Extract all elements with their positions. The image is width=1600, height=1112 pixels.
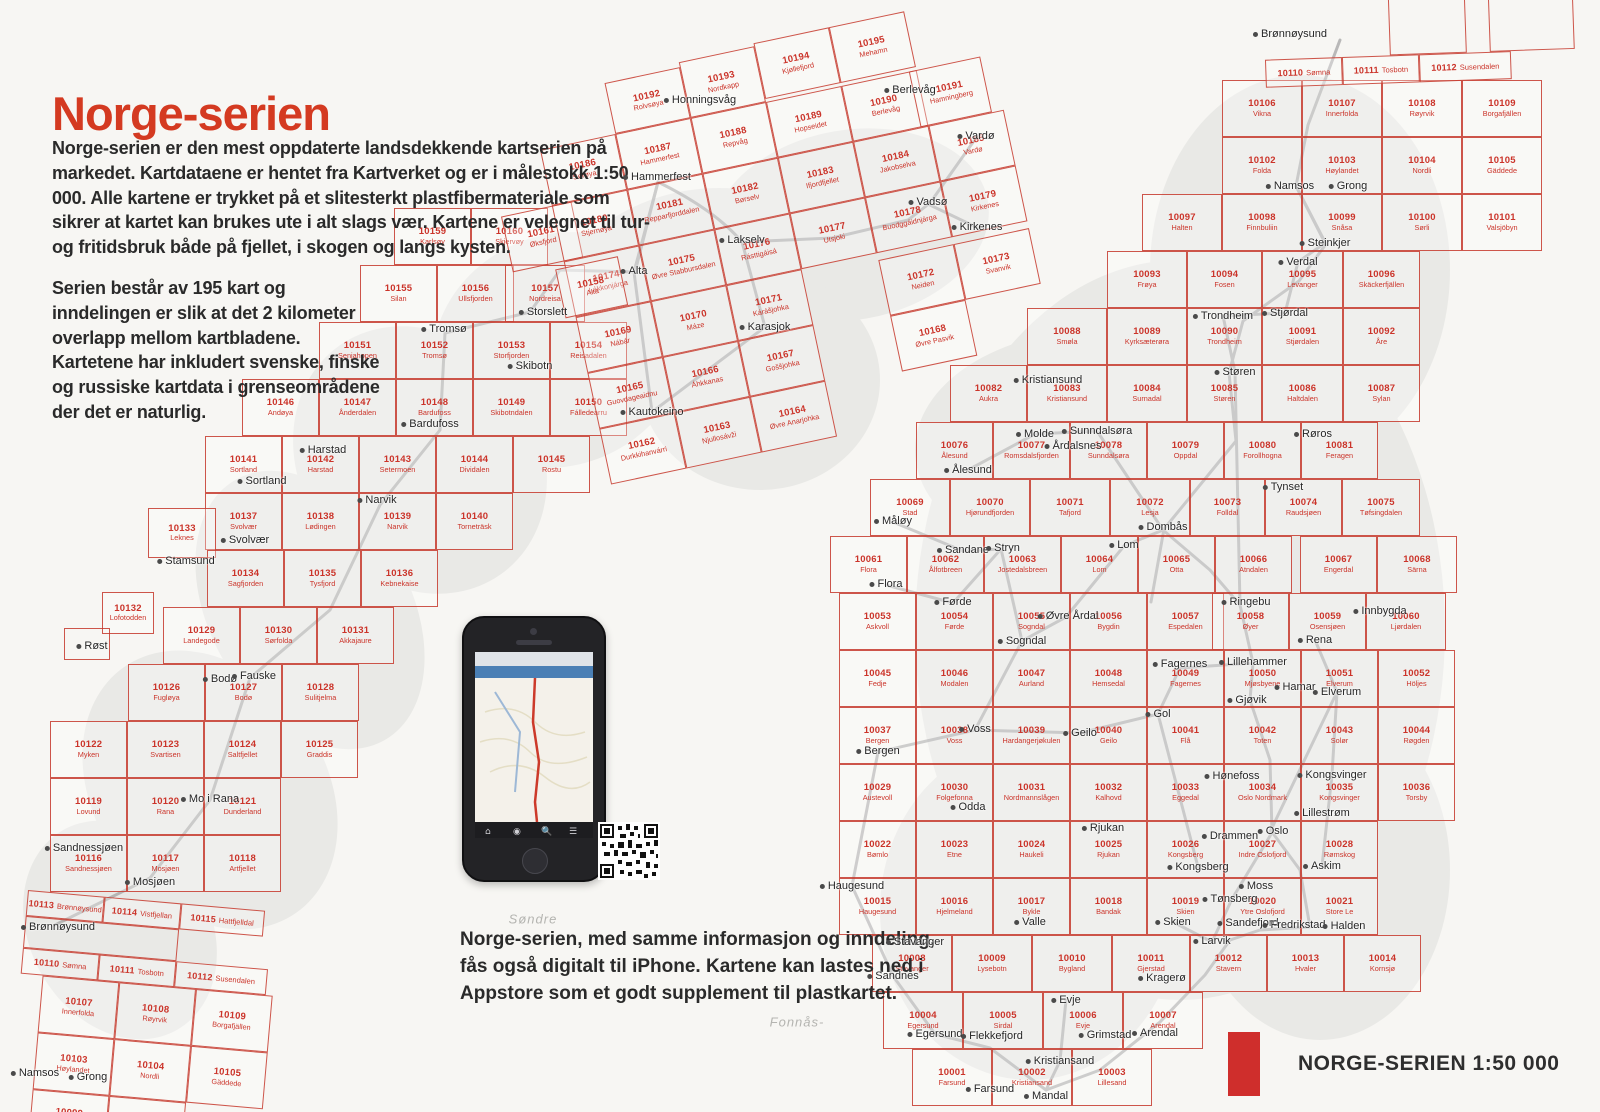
sheet-name: Aukra [979, 395, 998, 404]
sheet-name: Flora [860, 566, 877, 575]
map-cell-10134: 10134Sagfjorden [207, 550, 284, 607]
sheet-number: 10099 [55, 1106, 83, 1112]
town-label: Verdal [1278, 256, 1317, 268]
town-label: Kongsberg [1167, 861, 1228, 873]
series-footer: NORGE-SERIEN 1:50 000 [1228, 1032, 1559, 1096]
town-label: Gol [1145, 708, 1170, 720]
sheet-name: Tafjord [1059, 509, 1081, 518]
sheet-name: Borgafjällen [212, 1020, 251, 1032]
town-label: Honningsvåg [664, 94, 736, 106]
sheet-name: Setermoen [380, 466, 416, 475]
sheet-name: Fagernes [1170, 680, 1201, 689]
town-label: Alta [621, 265, 648, 277]
sheet-name: Utsjoki [823, 232, 846, 245]
sheet-name: Särna [1407, 566, 1426, 575]
map-cell-10065: 10065Otta [1138, 536, 1215, 593]
town-label: Ålesund [944, 464, 992, 476]
town-label: Kirkenes [952, 221, 1003, 233]
town-dot-icon [45, 846, 50, 851]
sheet-name: Sulitjelma [305, 694, 337, 703]
town-dot-icon [1323, 924, 1328, 929]
town-label: Svolvær [221, 534, 269, 546]
town-label: Mo i Rana [181, 793, 239, 805]
sheet-number: 10111 [1354, 64, 1379, 76]
sheet-name: Voss [947, 737, 963, 746]
town-dot-icon [1145, 712, 1150, 717]
town-dot-icon [1253, 32, 1258, 37]
sheet-name: Tøfsingdalen [1360, 509, 1402, 518]
town-label: Sogndal [998, 635, 1046, 647]
sheet-name: Feragen [1326, 452, 1353, 461]
sheet-name: Gäddede [1487, 167, 1517, 176]
map-cell-10087: 10087Sylan [1343, 365, 1420, 422]
sheet-name: Førde [945, 623, 964, 632]
sheet-name: Hjørundfjorden [966, 509, 1014, 518]
town-dot-icon [69, 1075, 74, 1080]
map-cell-10109: 10109Borgafjällen [1462, 80, 1542, 137]
sheet-name: Halten [1171, 224, 1192, 233]
sheet-name: Geilo [1100, 737, 1117, 746]
town-label: Bergen [856, 745, 899, 757]
town-dot-icon [157, 559, 162, 564]
town-dot-icon [907, 1032, 912, 1037]
sheet-name: Kristiansund [1047, 395, 1087, 404]
town-dot-icon [1258, 829, 1263, 834]
map-cell-partial [1388, 0, 1467, 55]
sheet-name: Hardangerjøkulen [1002, 737, 1060, 746]
red-block-icon [1228, 1032, 1260, 1096]
town-label: Brønnøysund [21, 921, 95, 933]
town-dot-icon [1300, 241, 1305, 246]
town-label: Trondheim [1193, 310, 1253, 322]
town-label: Øvre Årdal [1038, 610, 1099, 622]
sheet-name: Osensjøen [1310, 623, 1345, 632]
sheet-name: Tosbotn [1382, 64, 1409, 74]
town-label: Stryn [986, 542, 1020, 554]
sheet-name: Nordli [1412, 167, 1431, 176]
sheet-name: Ålesund [941, 452, 967, 461]
sheet-name: Akkajaure [339, 637, 371, 646]
map-cell-10110: 10110Sømna [1265, 57, 1343, 88]
town-dot-icon [300, 448, 305, 453]
town-dot-icon [1217, 921, 1222, 926]
map-cell-10136: 10136Kebnekaise [361, 550, 438, 607]
sheet-name: Lesja [1141, 509, 1158, 518]
town-dot-icon [621, 269, 626, 274]
sheet-name: Solør [1331, 737, 1348, 746]
map-cell-10096: 10096Skäckerfjällen [1343, 251, 1420, 308]
town-label: Bardufoss [401, 418, 459, 430]
town-dot-icon [1202, 897, 1207, 902]
map-cell-10069: 10069Stad [870, 479, 950, 536]
map-cell-10119: 10119Lovund [50, 778, 127, 835]
town-dot-icon [1262, 923, 1267, 928]
sheet-name: Tysfjord [310, 580, 336, 589]
map-cell-10048: 10048Hemsedal [1070, 650, 1147, 707]
town-label: Kristiansand [1026, 1055, 1095, 1067]
map-cell-10018: 10018Bandak [1070, 878, 1147, 935]
town-dot-icon [1193, 314, 1198, 319]
town-dot-icon [1204, 774, 1209, 779]
sheet-name: Stjørdalen [1286, 338, 1319, 347]
map-cell-10097: 10097Halten [1142, 194, 1222, 251]
sheet-name: Åre [1376, 338, 1387, 347]
sheet-name: Sagfjorden [228, 580, 263, 589]
map-cell-10149: 10149Skibotndalen [473, 379, 550, 436]
map-cell-10131: 10131Akkajaure [317, 607, 394, 664]
town-label: Drammen [1202, 830, 1258, 842]
map-cell-10053: 10053Askvoll [839, 593, 916, 650]
town-label: Brønnøysund [1253, 28, 1327, 40]
sheet-name: Askvoll [866, 623, 889, 632]
town-dot-icon [664, 98, 669, 103]
sheet-name: Espedalen [1168, 623, 1203, 632]
town-label: Lakselv [719, 234, 764, 246]
town-label: Kragerø [1138, 972, 1186, 984]
town-dot-icon [961, 1034, 966, 1039]
town-dot-icon [856, 749, 861, 754]
town-dot-icon [1262, 311, 1267, 316]
town-label: Tromsø [421, 323, 466, 335]
town-label: Grong [1329, 180, 1368, 192]
town-label: Halden [1323, 920, 1366, 932]
town-dot-icon [966, 1087, 971, 1092]
sheet-name: Innerfolda [1326, 110, 1358, 119]
town-dot-icon [1038, 614, 1043, 619]
town-label: Gjøvik [1227, 694, 1266, 706]
town-dot-icon [1298, 638, 1303, 643]
sheet-name: Graddis [307, 751, 333, 760]
town-label: Rjukan [1082, 822, 1124, 834]
town-label: Dombås [1139, 521, 1188, 533]
map-cell-10094: 10094Fosen [1187, 251, 1262, 308]
iphone-graphic: ⌂◉🔍☰ [462, 616, 606, 882]
sheet-name: Flå [1180, 737, 1190, 746]
map-cell-10143: 10143Setermoen [359, 436, 436, 493]
iphone-note-text: Norge-serien, med samme informasjon og i… [460, 927, 950, 1008]
sheet-name: Folldal [1217, 509, 1239, 518]
town-label: Røst [76, 640, 107, 652]
map-cell-10111: 10111Tosbotn [1342, 54, 1420, 85]
town-dot-icon [1014, 378, 1019, 383]
town-label: Førde [934, 596, 971, 608]
qr-code [598, 822, 660, 880]
town-label: Sandane [937, 544, 989, 556]
sheet-name: Hvaler [1295, 965, 1316, 974]
town-label: Geilo [1063, 727, 1097, 739]
town-dot-icon [1014, 920, 1019, 925]
town-label: Sandnessjøen [45, 842, 123, 854]
town-dot-icon [944, 468, 949, 473]
map-cell-10032: 10032Kalhovd [1070, 764, 1147, 821]
town-dot-icon [1263, 485, 1268, 490]
town-dot-icon [867, 974, 872, 979]
town-dot-icon [1222, 600, 1227, 605]
town-label: Egersund [907, 1028, 962, 1040]
map-cell-10107: 10107Innerfolda [38, 976, 120, 1039]
sheet-name: Ålfotbreen [929, 566, 962, 575]
town-dot-icon [1051, 998, 1056, 1003]
sheet-name: Svolvær [230, 523, 257, 532]
map-cell-10140: 10140Torneträsk [436, 493, 513, 550]
map-cell-10007: 10007Arendal [1123, 992, 1203, 1049]
town-dot-icon [1294, 811, 1299, 816]
sheet-name: Borgafjällen [1483, 110, 1522, 119]
town-dot-icon [937, 548, 942, 553]
town-label: Evje [1051, 994, 1080, 1006]
town-dot-icon [957, 134, 962, 139]
map-cell-10126: 10126Fugløya [128, 664, 205, 721]
town-dot-icon [886, 940, 891, 945]
map-cell-10089: 10089Kyrksæterøra [1107, 308, 1187, 365]
sheet-name: Atndalen [1239, 566, 1268, 575]
sheet-name: Indre Oslofjord [1239, 851, 1287, 860]
sheet-name: Narvik [387, 523, 408, 532]
map-cell-10121: 10121Dunderland [204, 778, 281, 835]
sheet-name: Hjelmeland [936, 908, 973, 917]
map-cell-10031: 10031Nordmannslågen [993, 764, 1070, 821]
sheet-name: Farsund [939, 1079, 966, 1088]
town-dot-icon [1132, 1031, 1137, 1036]
sheet-name: Brønnøysund [57, 901, 103, 914]
map-cell-10066: 10066Atndalen [1215, 536, 1292, 593]
town-dot-icon [1079, 1033, 1084, 1038]
map-cell-10022: 10022Bømlo [839, 821, 916, 878]
town-label: Fredrikstad [1262, 919, 1325, 931]
sheet-name: Ullsfjorden [458, 295, 492, 304]
sheet-name: Leknes [170, 534, 194, 543]
town-dot-icon [623, 175, 628, 180]
town-label: Mosjøen [125, 876, 175, 888]
sheet-name: Alta [586, 287, 600, 298]
town-label: Grong [69, 1071, 108, 1083]
sheet-name: Lysebotn [977, 965, 1006, 974]
town-label: Fauske [232, 670, 276, 682]
map-cell-10042: 10042Toten [1224, 707, 1301, 764]
map-cell-10092: 10092Åre [1343, 308, 1420, 365]
map-cell-10105: 10105Gäddede [186, 1046, 268, 1109]
town-dot-icon [1167, 865, 1172, 870]
town-dot-icon [952, 225, 957, 230]
map-cell-10103: 10103Høylandet [33, 1032, 115, 1095]
sheet-name: Kongsberg [1168, 851, 1203, 860]
sheet-name: Hattfjelldal [218, 915, 254, 927]
intro-paragraph-2: Serien består av 195 kart og inndelingen… [52, 276, 382, 425]
town-label: Voss [959, 723, 991, 735]
town-dot-icon [1297, 773, 1302, 778]
map-cell-10068: 10068Särna [1377, 536, 1457, 593]
town-dot-icon [874, 519, 879, 524]
sheet-name: Lofotodden [110, 614, 147, 623]
sheet-number: 10115 [190, 912, 216, 925]
sheet-name: Smøla [1056, 338, 1077, 347]
sheet-name: Nordmannslågen [1004, 794, 1060, 803]
town-dot-icon [1109, 543, 1114, 548]
sheet-name: Toten [1254, 737, 1272, 746]
svg-text:⌂: ⌂ [485, 827, 491, 837]
town-dot-icon [951, 805, 956, 810]
map-cell-10071: 10071Tafjord [1030, 479, 1110, 536]
town-dot-icon [203, 677, 208, 682]
sheet-name: Ljørdalen [1391, 623, 1421, 632]
sheet-number: 10110 [33, 956, 59, 969]
sheet-name: Bodø [235, 694, 252, 703]
town-label: Oslo [1258, 825, 1289, 837]
town-dot-icon [719, 238, 724, 243]
map-cell-10044: 10044Røgden [1378, 707, 1455, 764]
sheet-number: 10114 [111, 905, 137, 918]
town-label: Askim [1303, 860, 1341, 872]
map-cell-10100: 10100Sørli [1382, 194, 1462, 251]
town-dot-icon [1153, 662, 1158, 667]
town-dot-icon [1353, 609, 1358, 614]
town-dot-icon [998, 639, 1003, 644]
town-label: Narvik [357, 494, 396, 506]
town-label: Namsos [11, 1067, 59, 1079]
town-dot-icon [740, 325, 745, 330]
sheet-name: Forollhogna [1243, 452, 1282, 461]
norge-serien-map-index-page: { "title": "Norge-serien", "intro": { "p… [0, 0, 1600, 1112]
sheet-name: Levanger [1287, 281, 1317, 290]
town-dot-icon [1266, 184, 1271, 189]
sheet-name: Oppdal [1174, 452, 1198, 461]
sheet-name: Sørfolda [265, 637, 293, 646]
map-cell-10070: 10070Hjørundfjorden [950, 479, 1030, 536]
sheet-name: Snåsa [1332, 224, 1353, 233]
town-dot-icon [1045, 444, 1050, 449]
town-label: Hammerfest [623, 171, 691, 183]
sheet-name: Nábár [610, 336, 631, 349]
sheet-name: Mosjøen [152, 865, 180, 874]
town-label: Tynset [1263, 481, 1303, 493]
sheet-name: Sømna [1306, 67, 1330, 77]
town-dot-icon [1202, 834, 1207, 839]
town-label: Innbygda [1353, 605, 1406, 617]
sheet-name: Sømna [62, 960, 87, 971]
sheet-name: Ytre Oslofjord [1240, 908, 1285, 917]
town-label: Røros [1294, 428, 1332, 440]
sheet-name: Neiden [911, 279, 935, 292]
map-cell-10023: 10023Etne [916, 821, 993, 878]
town-label: Molde [1016, 428, 1054, 440]
sheet-name: Skibotndalen [490, 409, 532, 418]
map-cell-10156: 10156Ullsfjorden [437, 265, 514, 322]
map-cell-10039: 10039Hardangerjøkulen [993, 707, 1070, 764]
town-label: Storslett [519, 306, 567, 318]
sheet-name: Susendalen [1460, 61, 1500, 71]
sheet-name: Sylan [1372, 395, 1390, 404]
svg-text:🔍: 🔍 [541, 825, 552, 837]
background-place-label: Søndre [509, 912, 558, 927]
map-cell-10118: 10118Artfjellet [204, 835, 281, 892]
town-dot-icon [181, 797, 186, 802]
series-scale-label: NORGE-SERIEN 1:50 000 [1298, 1052, 1559, 1076]
map-cell-10145: 10145Rostu [513, 436, 590, 493]
town-dot-icon [238, 479, 243, 484]
town-label: Grimstad [1079, 1029, 1132, 1041]
town-label: Måløy [874, 515, 912, 527]
map-cell-10051: 10051Elverum [1301, 650, 1378, 707]
sheet-name: Vardø [963, 145, 984, 158]
sheet-name: Øyer [1243, 623, 1259, 632]
town-label: Rena [1298, 634, 1332, 646]
map-cell-10133: 10133Leknes [148, 508, 216, 558]
map-cell-10123: 10123Svartisen [127, 721, 204, 778]
town-dot-icon [620, 410, 625, 415]
map-cell-10060: 10060Ljørdalen [1366, 593, 1446, 650]
sheet-name: Kyrksæterøra [1125, 338, 1169, 347]
town-label: Stamsund [157, 555, 215, 567]
sheet-name: Rømskog [1324, 851, 1355, 860]
sheet-name: Susendalen [215, 973, 255, 985]
sheet-name: Røyrvik [142, 1014, 167, 1025]
map-cell-10122: 10122Myken [50, 721, 127, 778]
sheet-name: Oslo Nordmark [1238, 794, 1287, 803]
background-place-label: Fonnås- [770, 1015, 825, 1030]
sheet-name: Romsdalsfjorden [1004, 452, 1059, 461]
map-cell-10173: 10173Svanvik [954, 228, 1041, 300]
town-label: Berlevåg [884, 84, 935, 96]
phone-camera-icon [530, 628, 537, 635]
sheet-name: Dunderland [224, 808, 262, 817]
town-dot-icon [869, 582, 874, 587]
town-dot-icon [221, 538, 226, 543]
sheet-name: Sogndal [1018, 623, 1045, 632]
town-dot-icon [1155, 920, 1160, 925]
town-dot-icon [1294, 432, 1299, 437]
town-dot-icon [959, 727, 964, 732]
town-dot-icon [1082, 826, 1087, 831]
sheet-number: 10113 [28, 898, 54, 911]
town-label: Kongsvinger [1297, 769, 1366, 781]
sheet-name: Modalen [941, 680, 969, 689]
map-cell-10101: 10101Valsjöbyn [1462, 194, 1542, 251]
town-dot-icon [1303, 864, 1308, 869]
map-cell-10104: 10104Nordli [109, 1039, 191, 1102]
town-dot-icon [508, 364, 513, 369]
svg-text:◉: ◉ [513, 827, 521, 837]
town-dot-icon [1139, 525, 1144, 530]
sheet-name: Svartisen [150, 751, 180, 760]
sheet-name: Sandnessjøen [65, 865, 112, 874]
town-label: Elverum [1313, 686, 1361, 698]
town-dot-icon [519, 310, 524, 315]
map-cell-10084: 10084Surnadal [1107, 365, 1187, 422]
sheet-name: Høylandet [1325, 167, 1358, 176]
sheet-name: Skäckerfjällen [1359, 281, 1404, 290]
town-label: Arendal [1132, 1027, 1178, 1039]
sheet-name: Aurland [1019, 680, 1044, 689]
town-label: Valle [1014, 916, 1046, 928]
map-cell-10128: 10128Sulitjelma [282, 664, 359, 721]
sheet-name: Surnadal [1132, 395, 1161, 404]
map-cell-10038: 10038Voss [916, 707, 993, 764]
town-label: Kristiansund [1014, 374, 1083, 386]
sheet-name: Torneträsk [457, 523, 491, 532]
town-dot-icon [1138, 976, 1143, 981]
sheet-name: Sunndalsøra [1088, 452, 1129, 461]
sheet-name: Lovund [77, 808, 101, 817]
map-cell-10108: 10108Røyrvik [114, 982, 196, 1045]
map-cell-10024: 10024Haukeli [993, 821, 1070, 878]
sheet-name: Tromsø [422, 352, 447, 361]
map-cell-10073: 10073Folldal [1190, 479, 1265, 536]
town-label: Harstad [300, 444, 347, 456]
sheet-name: Lillesand [1098, 1079, 1127, 1088]
map-cell-10080: 10080Forollhogna [1224, 422, 1301, 479]
town-label: Lillehammer [1219, 656, 1287, 668]
town-dot-icon [986, 546, 991, 551]
